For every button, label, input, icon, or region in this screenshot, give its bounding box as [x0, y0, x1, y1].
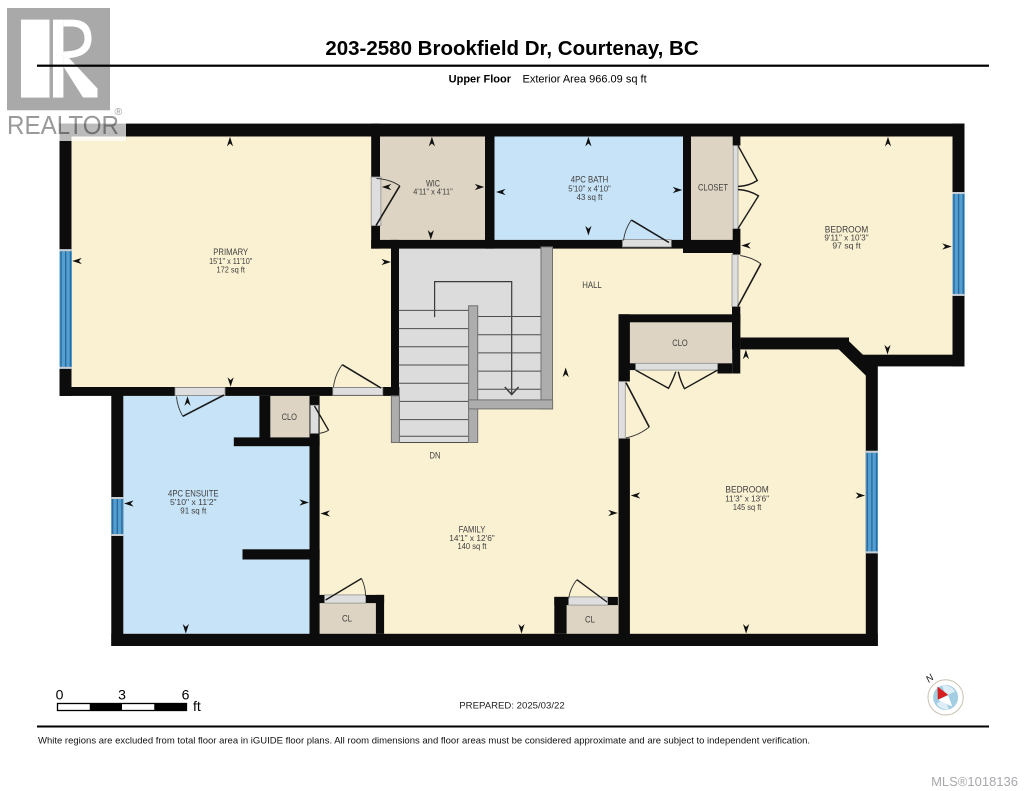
svg-text:4'11" x 4'11": 4'11" x 4'11": [413, 188, 453, 197]
svg-text:White regions are excluded fro: White regions are excluded from total fl…: [38, 736, 810, 747]
svg-text:91 sq ft: 91 sq ft: [180, 506, 207, 515]
svg-text:3: 3: [118, 687, 126, 703]
svg-text:CLOSET: CLOSET: [698, 182, 728, 192]
svg-text:ft: ft: [193, 698, 201, 714]
svg-text:203-2580 Brookfield Dr, Courte: 203-2580 Brookfield Dr, Courtenay, BC: [325, 37, 698, 60]
svg-text:0: 0: [56, 687, 64, 703]
svg-text:CLO: CLO: [282, 412, 297, 422]
svg-text:CL: CL: [342, 613, 352, 623]
svg-text:4PC ENSUITE: 4PC ENSUITE: [168, 488, 219, 498]
svg-text:4PC BATH: 4PC BATH: [571, 175, 609, 185]
svg-text:6: 6: [182, 687, 190, 703]
svg-text:®: ®: [115, 106, 123, 118]
svg-text:CLO: CLO: [672, 338, 687, 348]
svg-text:97 sq ft: 97 sq ft: [832, 241, 861, 250]
svg-text:CL: CL: [585, 615, 595, 625]
svg-text:HALL: HALL: [582, 280, 602, 290]
svg-text:43 sq ft: 43 sq ft: [577, 193, 604, 202]
svg-text:BEDROOM: BEDROOM: [725, 484, 768, 494]
svg-text:REALTOR: REALTOR: [7, 110, 119, 140]
svg-text:Exterior Area 966.09 sq ft: Exterior Area 966.09 sq ft: [523, 74, 647, 86]
svg-text:145 sq ft: 145 sq ft: [733, 503, 762, 512]
svg-text:PREPARED: 2025/03/22: PREPARED: 2025/03/22: [459, 701, 564, 712]
svg-text:MLS®1018136: MLS®1018136: [931, 774, 1018, 789]
svg-text:Upper Floor: Upper Floor: [449, 74, 512, 86]
svg-text:172 sq ft: 172 sq ft: [216, 265, 245, 274]
svg-text:PRIMARY: PRIMARY: [213, 247, 248, 257]
svg-text:DN: DN: [430, 450, 441, 460]
svg-text:140 sq ft: 140 sq ft: [458, 542, 488, 551]
